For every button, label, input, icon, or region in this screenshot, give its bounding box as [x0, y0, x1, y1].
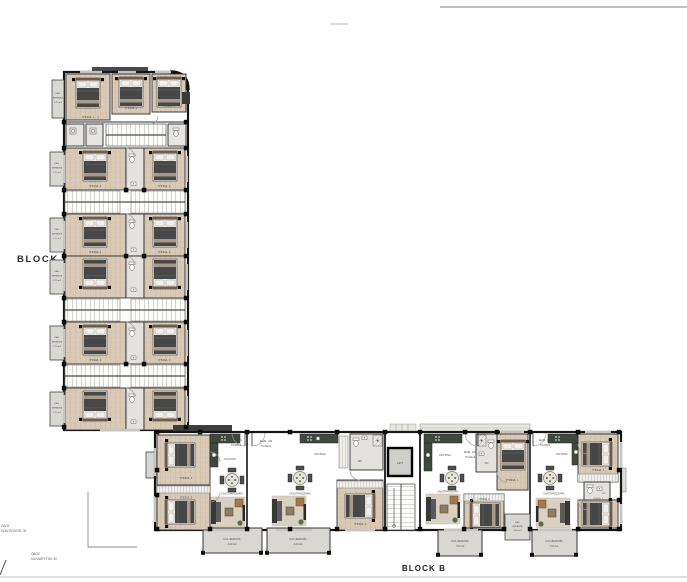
svg-text:4.00 m2: 4.00 m2	[228, 543, 237, 546]
svg-text:WC: WC	[602, 493, 606, 495]
dining-table-icon	[220, 468, 244, 492]
svg-text:ΥΠΝΟΔ. 2: ΥΠΝΟΔ. 2	[158, 260, 171, 264]
veranda: ΚΑΛ. ΒΕΡΑΝΤΑ 7.00 m2	[532, 530, 577, 556]
block-a-stair-band	[65, 364, 185, 388]
floor-plan-drawing: ΟΔΟΣ ΚΩΝ/ΠΟΛΕΩΣ 30 ΟΔΟΣ ΚΑΛΑΒΡΥΤΩΝ 30 BL…	[0, 0, 687, 582]
svg-text:ΥΠΝΟΔ. 2: ΥΠΝΟΔ. 2	[158, 392, 171, 396]
sofa-icon	[272, 496, 306, 526]
svg-text:ΥΠΝΟΔ. 1: ΥΠΝΟΔ. 1	[89, 392, 102, 396]
kitchen-counter	[548, 434, 580, 443]
street-left-line1: ΟΔΟΣ	[1, 524, 10, 528]
veranda: ΚΑΛ. ΒΕΡΑΝΤΑ 4.00 m2	[203, 528, 262, 553]
svg-text:ΥΠΝΟΔ. 2: ΥΠΝΟΔ. 2	[158, 250, 171, 254]
svg-text:ΚΑΛ. ΒΕΡΑΝΤΑ: ΚΑΛ. ΒΕΡΑΝΤΑ	[546, 540, 563, 543]
sink-icon	[316, 437, 320, 441]
street-label-bottom: ΟΔΟΣ ΚΑΛΑΒΡΥΤΩΝ 30	[31, 552, 57, 561]
sink-icon	[131, 182, 136, 186]
block-b-label: BLOCK B	[402, 564, 446, 573]
svg-text:ΥΠΝΟΔ. 1: ΥΠΝΟΔ. 1	[89, 250, 102, 254]
svg-text:ΚΑΛ.: ΚΑΛ.	[55, 228, 60, 231]
bed-icon	[79, 325, 111, 355]
washer-icon	[90, 128, 96, 134]
svg-text:ΒΕΡΑΝΤΑ: ΒΕΡΑΝΤΑ	[52, 341, 62, 344]
svg-text:ΒΕΡΑΝΤΑ: ΒΕΡΑΝΤΑ	[513, 525, 523, 528]
bed-icon	[149, 151, 181, 181]
svg-text:3.75 m2: 3.75 m2	[53, 346, 62, 348]
bed-icon	[345, 490, 375, 522]
bed-icon	[72, 78, 104, 108]
svg-text:ΥΠΝΟΔ. 2: ΥΠΝΟΔ. 2	[478, 498, 490, 501]
block-a-balcony: ΚΑΛ. ΒΕΡΑΝΤΑ 3.75 m2	[50, 260, 64, 294]
svg-text:ΒΕΡΑΝΤΑ: ΒΕΡΑΝΤΑ	[53, 97, 63, 100]
svg-text:ΒΕΡΑΝΤΑ: ΒΕΡΑΝΤΑ	[52, 167, 62, 170]
sink-icon	[131, 356, 136, 360]
svg-text:3.75 m2: 3.75 m2	[53, 172, 62, 174]
block-a-floor-row: ΥΠΝΟΔ. 1 ΥΠΝΟΔ. 2	[65, 322, 185, 364]
room-label: ΥΠΝΟΔ. 2	[125, 106, 138, 110]
apartment-101: ΥΠΝΟΔ. 1 ΥΠΝΟΔ. 2 ΚΟΥΖΙΝΑ ΔΙΑΜ. 101 73.0…	[157, 434, 245, 530]
sink-icon	[131, 248, 136, 252]
svg-text:ΥΠΝΟΔ. 1: ΥΠΝΟΔ. 1	[592, 468, 605, 472]
room-label: ΥΠΝΟΔ. 1	[82, 115, 95, 119]
top-ledge	[420, 424, 530, 432]
block-a-roof-strip	[92, 67, 148, 72]
svg-text:ΚΑΛ.: ΚΑΛ.	[515, 521, 520, 524]
svg-text:ΥΠΝΟΔ. 2: ΥΠΝΟΔ. 2	[593, 497, 604, 500]
wardrobe	[337, 481, 383, 488]
apartment-label: ΔΙΑΜ. 101	[230, 438, 243, 442]
toilet-icon	[587, 485, 593, 494]
svg-text:WC: WC	[358, 460, 362, 463]
veranda: ΚΑΛ. ΒΕΡΑΝΤΑ 4.00 m2	[505, 514, 530, 540]
sink-icon	[597, 487, 602, 491]
wc-room: WC	[350, 434, 383, 470]
svg-text:ΥΠΝΟΔ. 1: ΥΠΝΟΔ. 1	[506, 478, 519, 482]
bed-icon	[149, 325, 181, 355]
svg-text:WC: WC	[485, 462, 489, 465]
toilet-icon	[173, 128, 179, 137]
svg-text:ΥΠΝΟΔ. 1: ΥΠΝΟΔ. 1	[89, 184, 102, 188]
svg-text:ΚΑΛ. ΒΕΡΑΝΤΑ: ΚΑΛ. ΒΕΡΑΝΤΑ	[452, 540, 469, 543]
apartment-label: 70.00m2	[465, 455, 476, 459]
block-a-balcony: ΚΑΛ. ΒΕΡΑΝΤΑ 3.75 m2	[50, 392, 64, 426]
svg-text:ΚΑΛ.: ΚΑΛ.	[55, 402, 60, 405]
stairwell	[387, 484, 415, 530]
apartment-104: ΔΙΑΜ. 104 73.00m2 ΚΟΥΖΙΝΑ ΣΑΛΟΤΡΑΠΕΖΑΡΙΑ…	[536, 434, 618, 530]
block-a: ΥΠΝΟΔ. 1 ΥΠΝΟΔ. 2 ΥΠΝΟΔ. 1 ΚΑΛ. ΒΕΡΑΝΤΑ …	[50, 67, 190, 430]
svg-text:ΥΠΝΟΔ. 1: ΥΠΝΟΔ. 1	[89, 358, 102, 362]
block-a-balcony: ΚΑΛ. ΒΕΡΑΝΤΑ 3.75 m2	[52, 80, 64, 118]
svg-text:ΚΑΛ.: ΚΑΛ.	[55, 162, 60, 165]
svg-text:ΚΑΛ.: ΚΑΛ.	[56, 92, 61, 95]
veranda: ΚΑΛ. ΒΕΡΑΝΤΑ 4.00 m2	[267, 528, 330, 553]
street-corner-symbol	[88, 492, 137, 547]
block-a-balcony: ΚΑΛ. ΒΕΡΑΝΤΑ 3.75 m2	[50, 326, 64, 360]
svg-text:7.00 m2: 7.00 m2	[550, 545, 559, 548]
svg-text:ΣΑΛΟΤΡΑΠΕΖΑΡΙΑ: ΣΑΛΟΤΡΑΠΕΖΑΡΙΑ	[437, 491, 459, 494]
svg-text:ΚΟΥΖΙΝΑ: ΚΟΥΖΙΝΑ	[556, 452, 568, 456]
wardrobe	[578, 474, 618, 482]
sink-icon	[131, 288, 136, 292]
svg-text:ΥΠΝΟΔ. 1: ΥΠΝΟΔ. 1	[354, 522, 367, 526]
dining-table-icon	[538, 466, 562, 490]
bed-icon	[79, 151, 111, 181]
shower-icon	[373, 435, 382, 446]
bed-icon	[165, 496, 195, 528]
bed-icon	[497, 440, 529, 470]
apartment-label: ΔΙΑΜ. 102	[260, 439, 273, 443]
svg-text:4.00 m2: 4.00 m2	[514, 530, 523, 532]
lift-label: LIFT	[397, 461, 403, 465]
apartment-102: ΔΙΑΜ. 102 73.00m2 ΚΟΥΖΙΝΑ ΣΑΛΟΤΡΑΠΕΖΑΡΙΑ…	[260, 434, 383, 530]
street-label-left: ΟΔΟΣ ΚΩΝ/ΠΟΛΕΩΣ 30	[1, 524, 27, 533]
block-a-balcony: ΚΑΛ. ΒΕΡΑΝΤΑ 3.75 m2	[50, 218, 64, 252]
svg-text:ΣΑΛΟΤΡΑΠΕΖΑΡΙΑ: ΣΑΛΟΤΡΑΠΕΖΑΡΙΑ	[289, 493, 311, 496]
block-a-balcony: ΚΑΛ. ΒΕΡΑΝΤΑ 3.75 m2	[50, 152, 64, 186]
bed-icon	[115, 77, 147, 107]
veranda: ΚΑΛ. ΒΕΡΑΝΤΑ 7.00 m2	[438, 530, 482, 556]
svg-text:4.00 m2: 4.00 m2	[294, 543, 303, 546]
bed-icon	[165, 439, 195, 471]
svg-text:ΚΑΛ. ΒΕΡΑΝΤΑ: ΚΑΛ. ΒΕΡΑΝΤΑ	[290, 538, 307, 541]
svg-text:ΥΠΝΟΔ. 2: ΥΠΝΟΔ. 2	[158, 184, 171, 188]
svg-text:ΚΟΥΖΙΝΑ: ΚΟΥΖΙΝΑ	[224, 457, 236, 461]
circulation-core: LIFT	[387, 448, 415, 530]
sink-icon	[131, 420, 136, 424]
svg-text:ΚΑΛ. ΒΕΡΑΝΤΑ: ΚΑΛ. ΒΕΡΑΝΤΑ	[224, 538, 241, 541]
floor-plan-sheet: ΟΔΟΣ ΚΩΝ/ΠΟΛΕΩΣ 30 ΟΔΟΣ ΚΑΛΑΒΡΥΤΩΝ 30 BL…	[0, 0, 687, 582]
svg-text:ΣΑΛΟΤΡΑΠΕΖΑΡΙΑ: ΣΑΛΟΤΡΑΠΕΖΑΡΙΑ	[543, 493, 565, 496]
sink-icon	[362, 436, 367, 440]
sofa-icon	[536, 498, 570, 528]
svg-text:ΚΑΛ.: ΚΑΛ.	[55, 336, 60, 339]
block-a-floor-row: ΥΠΝΟΔ. 1 ΥΠΝΟΔ. 2	[65, 148, 185, 190]
block-a-stair-band	[65, 190, 185, 214]
svg-text:7.00 m2: 7.00 m2	[456, 545, 465, 548]
kitchen-counter	[424, 434, 462, 443]
bed-icon	[582, 498, 612, 530]
svg-text:ΚΑΛ.: ΚΑΛ.	[55, 270, 60, 273]
entry-steps	[390, 424, 416, 432]
block-a-floor-row: ΥΠΝΟΔ. 1 ΥΠΝΟΔ. 2	[65, 214, 185, 256]
block-a-floor-row: ΥΠΝΟΔ. 1 ΥΠΝΟΔ. 2	[65, 388, 185, 430]
svg-text:3.75 m2: 3.75 m2	[53, 238, 62, 240]
room-label: ΥΠΝΟΔ. 1	[163, 104, 176, 108]
wc-room: WC	[476, 434, 497, 472]
apartment-label: 73.00m2	[261, 444, 272, 448]
dining-table-icon	[288, 466, 312, 490]
block-b: ΚΑΛ. ΒΕΡΑΝΤΑ 4.00 m2 ΚΑΛ. ΒΕΡΑΝΤΑ 4.00 m…	[146, 424, 626, 556]
svg-text:ΥΠΝΟΔ. 2: ΥΠΝΟΔ. 2	[180, 496, 193, 500]
svg-text:ΒΕΡΑΝΤΑ: ΒΕΡΑΝΤΑ	[52, 407, 62, 410]
block-a-stair-band	[65, 298, 185, 322]
svg-text:ΚΟΥΖΙΝΑ: ΚΟΥΖΙΝΑ	[439, 453, 451, 457]
block-a-floor-row: ΥΠΝΟΔ. 1 ΥΠΝΟΔ. 2	[65, 256, 185, 298]
street-left-line2: ΚΩΝ/ΠΟΛΕΩΣ 30	[1, 529, 27, 533]
street-bottom-line1: ΟΔΟΣ	[31, 552, 40, 556]
svg-text:ΥΠΝΟΔ. 2: ΥΠΝΟΔ. 2	[158, 358, 171, 362]
wardrobe	[339, 436, 348, 468]
bed-icon	[149, 217, 181, 247]
street-bottom-line2: ΚΑΛΑΒΡΥΤΩΝ 30	[31, 557, 57, 561]
svg-text:3.75 m2: 3.75 m2	[53, 412, 62, 414]
sink-icon	[574, 450, 578, 454]
dining-table-icon	[440, 466, 464, 490]
svg-text:ΒΕΡΑΝΤΑ: ΒΕΡΑΝΤΑ	[52, 233, 62, 236]
sofa-icon	[211, 497, 245, 527]
toilet-icon	[353, 438, 359, 447]
svg-text:ΚΟΥΖΙΝΑ: ΚΟΥΖΙΝΑ	[314, 452, 326, 456]
apartment-label: 73.00m2	[540, 443, 551, 447]
sink-icon	[426, 453, 430, 457]
bed-icon	[153, 77, 185, 107]
block-a-top-unit: ΥΠΝΟΔ. 1 ΥΠΝΟΔ. 2 ΥΠΝΟΔ. 1	[66, 74, 190, 146]
svg-text:ΒΕΡΑΝΤΑ: ΒΕΡΑΝΤΑ	[52, 275, 62, 278]
bed-icon	[470, 499, 500, 531]
wardrobe	[157, 486, 210, 493]
toilet-icon	[488, 440, 494, 449]
duct-box	[182, 92, 190, 104]
bed-icon	[79, 217, 111, 247]
svg-text:ΥΠΝΟΔ. 1: ΥΠΝΟΔ. 1	[180, 476, 193, 480]
svg-text:ΥΠΝΟΔ. 1: ΥΠΝΟΔ. 1	[89, 260, 102, 264]
washer-icon	[70, 128, 76, 134]
apartment-label: ΔΙΑΜ. 103	[464, 450, 477, 454]
svg-text:ΣΑΛΟΤΡΑΠΕΖΑΡΙΑ: ΣΑΛΟΤΡΑΠΕΖΑΡΙΑ	[221, 493, 243, 496]
svg-text:3.75 m2: 3.75 m2	[53, 280, 62, 282]
sofa-icon	[426, 494, 460, 524]
sink-icon	[479, 452, 484, 456]
svg-text:3.75 m2: 3.75 m2	[54, 102, 63, 104]
